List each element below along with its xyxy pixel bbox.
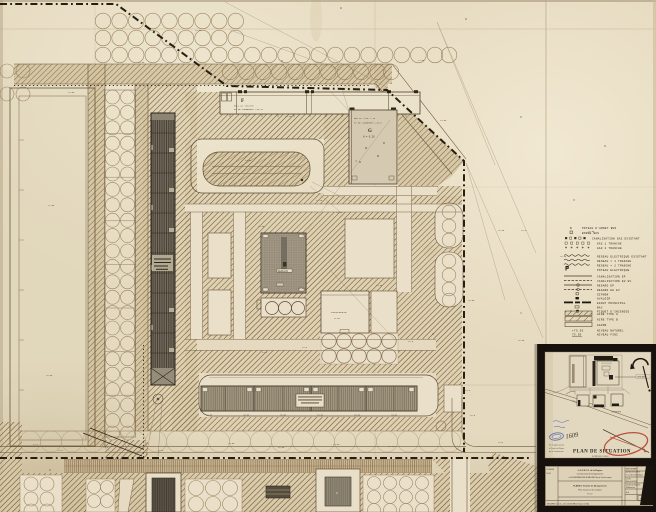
svg-text:74.30: 74.30 — [418, 59, 425, 62]
svg-text:REGARD EU EV: REGARD EU EV — [597, 289, 620, 292]
svg-text:74.0: 74.0 — [262, 351, 268, 354]
svg-text:RESEAU = 2 TRANCHE: RESEAU = 2 TRANCHE — [597, 265, 632, 268]
svg-text:74.0: 74.0 — [158, 449, 164, 452]
svg-text:73.80: 73.80 — [498, 229, 505, 232]
svg-text:75.00: 75.00 — [354, 414, 361, 417]
svg-text:GAZ 2 TRANCHE: GAZ 2 TRANCHE — [597, 247, 622, 250]
svg-text:RESEAU ELECTRIQUE EXISTANT: RESEAU ELECTRIQUE EXISTANT — [597, 256, 647, 259]
svg-text:74.10: 74.10 — [316, 199, 323, 202]
svg-text:EGOUT PRINCIPAL: EGOUT PRINCIPAL — [597, 302, 626, 305]
svg-text:AIRE TYPE A: AIRE TYPE A — [597, 313, 618, 316]
svg-text:G: G — [368, 129, 372, 134]
svg-text:NIVEAU NATUREL: NIVEAU NATUREL — [597, 330, 624, 333]
svg-text:HT DE LONGEMENT +76.47: HT DE LONGEMENT +76.47 — [234, 108, 264, 111]
svg-text:MODIFIE le 12.6 + 18.1.60: MODIFIE le 12.6 + 18.1.60 ECHELLE plans … — [547, 504, 589, 506]
svg-text:74.1: 74.1 — [58, 449, 64, 452]
svg-text:73.5: 73.5 — [498, 441, 504, 444]
svg-text:N 101: N 101 — [547, 473, 552, 475]
svg-text:CHAUFFERIE: CHAUFFERIE — [331, 311, 347, 314]
svg-text:POTEAU D'ARRET BUS: POTEAU D'ARRET BUS — [582, 226, 617, 230]
svg-text:CANALISATION EP: CANALISATION EP — [597, 276, 626, 279]
svg-text:X: X — [570, 227, 572, 230]
svg-text:LOGEMENTS: LOGEMENTS — [611, 412, 621, 414]
svg-text:Michel DURVE: Michel DURVE — [626, 481, 638, 483]
svg-text:PLAN DE SITUATION: PLAN DE SITUATION — [573, 450, 631, 455]
svg-text:74.2: 74.2 — [33, 443, 39, 446]
svg-text:le Prefet du Rhone: le Prefet du Rhone — [549, 447, 564, 450]
svg-text:73.30: 73.30 — [572, 334, 582, 337]
svg-text:74.00: 74.00 — [376, 284, 383, 287]
svg-text:74.00: 74.00 — [228, 442, 235, 445]
svg-text:HT DE LONGEMENT +76.5: HT DE LONGEMENT +76.5 — [354, 122, 382, 125]
svg-text:73.70: 73.70 — [388, 445, 395, 448]
svg-text:73.30: 73.30 — [560, 255, 567, 258]
svg-text:74.00: 74.00 — [258, 225, 265, 228]
svg-text:74.0: 74.0 — [302, 346, 308, 349]
svg-text:a VILLEFRANCHE-S/SAONE Route: a VILLEFRANCHE-S/SAONE Route Deschamps — [568, 476, 611, 479]
svg-text:AIRE TYPE B: AIRE TYPE B — [597, 318, 618, 321]
svg-text:+73.30: +73.30 — [572, 330, 584, 333]
svg-text:74.00: 74.00 — [440, 119, 447, 122]
svg-text:DOSSIER: DOSSIER — [547, 469, 555, 471]
svg-text:74.0: 74.0 — [521, 229, 527, 232]
svg-text:E.A.: E.A. — [626, 491, 630, 494]
svg-text:BORNE BUS: BORNE BUS — [582, 232, 599, 235]
svg-text:7 rue de la Republique: 7 rue de la Republique — [626, 474, 643, 477]
svg-text:SIPHON: SIPHON — [597, 293, 609, 296]
svg-text:de la Construction: de la Construction — [549, 450, 563, 453]
svg-text:Villefranche: Villefranche — [626, 486, 635, 489]
svg-text:75.00: 75.00 — [243, 414, 250, 417]
svg-text:Construction de 64 logements: Construction de 64 logements — [577, 473, 604, 476]
svg-text:GAZ 1 TRANCHE: GAZ 1 TRANCHE — [597, 243, 622, 246]
svg-text:POTEAU ELECTRIQUE: POTEAU ELECTRIQUE — [597, 269, 630, 272]
svg-text:architecte D.A.P.G.: architecte D.A.P.G. — [626, 471, 641, 474]
svg-text:ECHELLE 1/2000: ECHELLE 1/2000 — [592, 456, 609, 458]
svg-text:F: F — [241, 99, 244, 104]
svg-text:73.80: 73.80 — [333, 443, 340, 446]
svg-text:74.00: 74.00 — [195, 29, 202, 32]
svg-text:75.00: 75.00 — [391, 414, 398, 417]
svg-text:CANALISATION EU EV: CANALISATION EU EV — [597, 280, 632, 283]
svg-text:BAC: BAC — [597, 306, 603, 309]
svg-text:74.00: 74.00 — [336, 211, 343, 214]
svg-text:75.00: 75.00 — [317, 414, 324, 417]
svg-text:B+R+CH: B+R+CH — [278, 270, 288, 273]
svg-text:L.O.G.E.C.O. de la Region: L.O.G.E.C.O. de la Region — [578, 470, 603, 472]
svg-text:73.90: 73.90 — [278, 446, 285, 449]
svg-text:73.9: 73.9 — [408, 340, 414, 343]
svg-text:73.90: 73.90 — [298, 287, 305, 290]
svg-text:74.0: 74.0 — [103, 446, 109, 449]
svg-text:AVALOIR: AVALOIR — [597, 298, 610, 301]
svg-text:73.80: 73.80 — [46, 374, 53, 377]
svg-text:GAZON: GAZON — [597, 324, 607, 327]
svg-text:74.00: 74.00 — [68, 91, 75, 94]
svg-text:Vu et approuve par: Vu et approuve par — [549, 444, 565, 447]
svg-text:HRS DL 7/19 + 7M: HRS DL 7/19 + 7M — [354, 117, 376, 120]
svg-text:NIVEAU FINI: NIVEAU FINI — [597, 334, 618, 337]
svg-text:74.20: 74.20 — [285, 115, 292, 118]
svg-text:74.00: 74.00 — [48, 204, 55, 207]
svg-text:75.00: 75.00 — [206, 414, 213, 417]
svg-text:RESEAU = 1 TRANCHE: RESEAU = 1 TRANCHE — [597, 260, 632, 263]
svg-text:MRS ROBERT: MRS ROBERT — [626, 469, 637, 471]
svg-text:73.60: 73.60 — [468, 299, 475, 302]
svg-text:CANALISATION GAZ EXISTANT: CANALISATION GAZ EXISTANT — [592, 238, 640, 241]
svg-text:75.00: 75.00 — [280, 414, 287, 417]
svg-text:74.00: 74.00 — [334, 317, 341, 320]
svg-text:Plan masse et de situation: Plan masse et de situation — [578, 489, 601, 492]
svg-text:H = 6.26: H = 6.26 — [363, 136, 375, 139]
svg-text:74.50: 74.50 — [138, 61, 145, 64]
svg-text:73.6: 73.6 — [465, 389, 471, 392]
svg-text:73.40: 73.40 — [518, 339, 525, 342]
svg-text:73.5: 73.5 — [470, 414, 476, 417]
svg-text:REGARD EP: REGARD EP — [597, 285, 614, 288]
svg-text:PLANS la Tranche de 24 logeme: PLANS la Tranche de 24 logements — [573, 485, 607, 488]
svg-text:74.00: 74.00 — [245, 159, 252, 162]
